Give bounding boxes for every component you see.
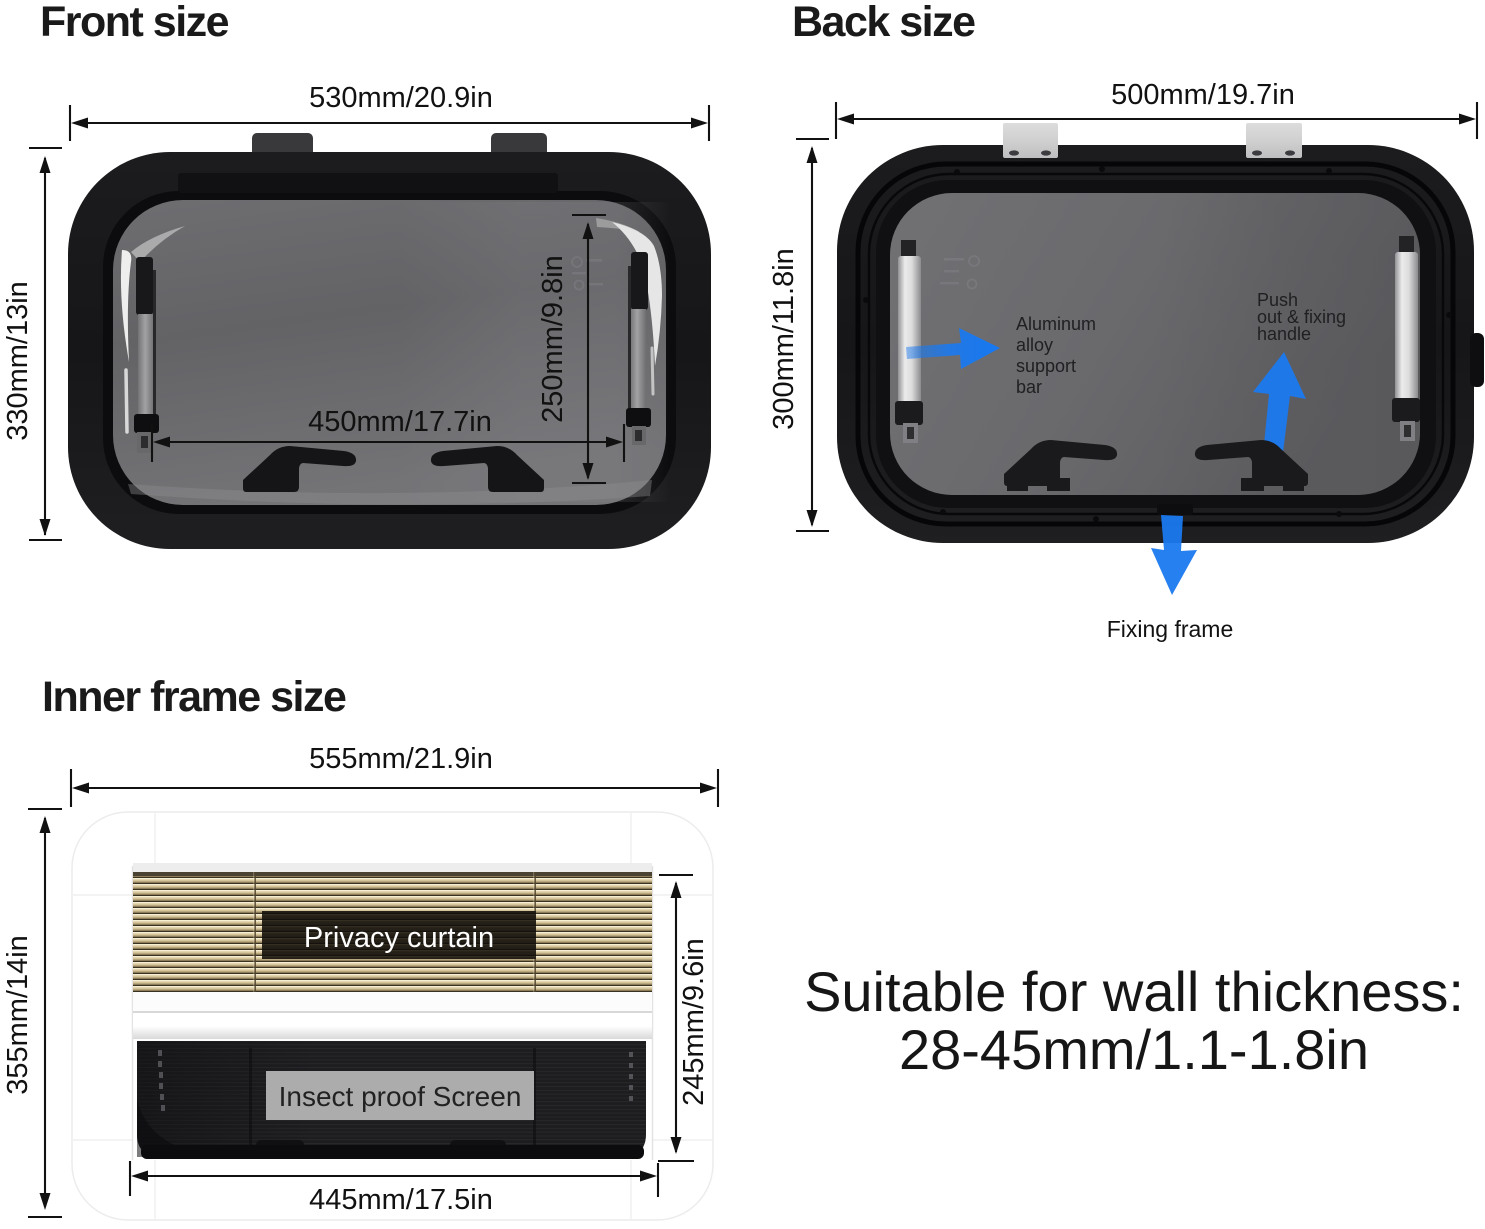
svg-text:245mm/9.6in: 245mm/9.6in	[678, 938, 710, 1106]
svg-text:handle: handle	[1257, 324, 1311, 344]
svg-text:330mm/13in: 330mm/13in	[2, 281, 34, 441]
svg-text:300mm/11.8in: 300mm/11.8in	[768, 248, 800, 430]
svg-text:Inner frame size: Inner frame size	[42, 673, 346, 721]
svg-text:Back size: Back size	[792, 0, 975, 46]
svg-text:500mm/19.7in: 500mm/19.7in	[1111, 79, 1295, 111]
svg-text:support: support	[1016, 356, 1076, 376]
svg-text:355mm/14in: 355mm/14in	[2, 935, 34, 1095]
svg-text:bar: bar	[1016, 377, 1042, 397]
svg-text:555mm/21.9in: 555mm/21.9in	[309, 743, 493, 775]
svg-text:450mm/17.7in: 450mm/17.7in	[308, 406, 492, 438]
svg-text:Suitable for wall thickness:: Suitable for wall thickness:	[804, 960, 1464, 1023]
svg-text:Insect proof Screen: Insect proof Screen	[279, 1081, 522, 1112]
svg-text:alloy: alloy	[1016, 335, 1053, 355]
svg-text:28-45mm/1.1-1.8in: 28-45mm/1.1-1.8in	[899, 1018, 1369, 1081]
svg-text:530mm/20.9in: 530mm/20.9in	[309, 82, 493, 114]
svg-text:Front size: Front size	[40, 0, 229, 46]
svg-text:Privacy curtain: Privacy curtain	[304, 922, 494, 954]
svg-text:250mm/9.8in: 250mm/9.8in	[537, 255, 569, 423]
svg-text:445mm/17.5in: 445mm/17.5in	[309, 1184, 493, 1216]
svg-text:Aluminum: Aluminum	[1016, 314, 1096, 334]
svg-text:Fixing frame: Fixing frame	[1107, 616, 1234, 642]
